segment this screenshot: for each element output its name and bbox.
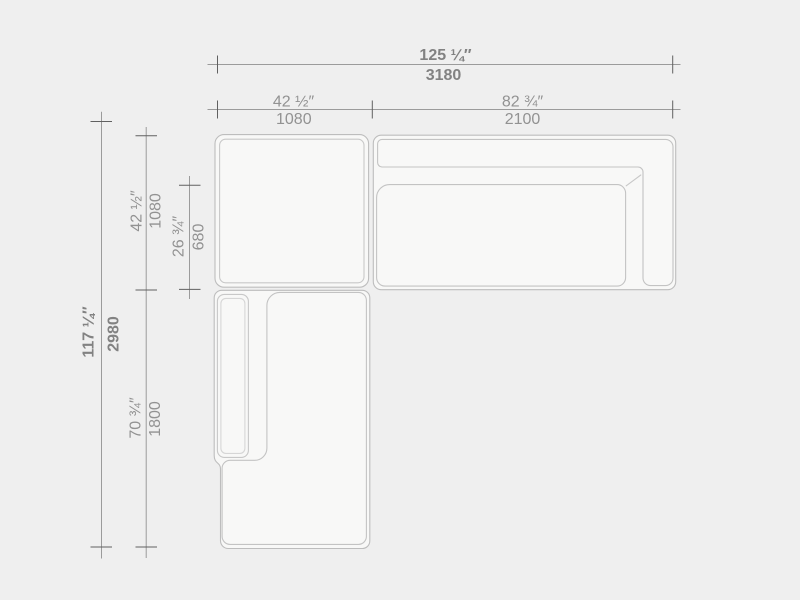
svg-text:125 ¼″: 125 ¼″ — [419, 47, 471, 64]
svg-text:42 ½″: 42 ½″ — [273, 93, 315, 110]
svg-text:70 ¾″: 70 ¾″ — [127, 397, 144, 439]
svg-text:680: 680 — [190, 224, 207, 251]
svg-text:1080: 1080 — [276, 111, 312, 128]
svg-text:82 ¾″: 82 ¾″ — [502, 93, 544, 110]
svg-text:42 ½″: 42 ½″ — [129, 190, 146, 232]
svg-text:26 ¾″: 26 ¾″ — [171, 216, 188, 258]
svg-text:3180: 3180 — [426, 67, 462, 84]
svg-text:2980: 2980 — [106, 316, 123, 352]
svg-text:2100: 2100 — [505, 111, 541, 128]
svg-text:117 ¼″: 117 ¼″ — [81, 306, 98, 358]
svg-text:1800: 1800 — [147, 401, 164, 437]
svg-text:1080: 1080 — [147, 193, 164, 229]
